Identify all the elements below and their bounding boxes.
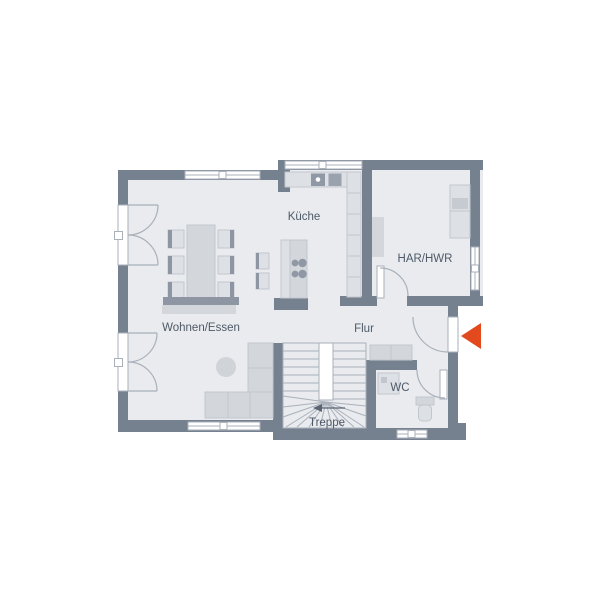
window-utility-right-handle <box>472 265 479 272</box>
window-kitchen-top-handle <box>319 162 326 169</box>
sideboard-bench <box>163 297 239 305</box>
cooktop-burner <box>292 271 299 278</box>
wall-stairs-right <box>366 360 376 440</box>
sideboard <box>162 305 236 314</box>
bar-stool-back <box>256 253 259 269</box>
french-door-lower-handle <box>115 359 123 367</box>
entrance-door-leaf <box>448 317 458 352</box>
room-label-wohnen-essen: Wohnen/Essen <box>162 322 240 334</box>
wall-right-lower-above-door <box>448 306 458 317</box>
toilet-bowl <box>419 405 432 421</box>
floor-plan-drawing: Küche HAR/HWR Wohnen/Essen Flur WC Trepp… <box>0 0 600 600</box>
kitchen-appliance <box>329 174 342 187</box>
utility-door-leaf <box>377 266 384 298</box>
kitchen-island-counter <box>281 240 290 298</box>
room-label-har-hwr: HAR/HWR <box>398 253 453 265</box>
chair-back <box>168 256 172 274</box>
french-door-upper-handle <box>115 232 123 240</box>
dining-chairs-left <box>168 230 184 300</box>
room-label-wc: WC <box>390 382 409 394</box>
coffee-table <box>216 357 236 377</box>
dining-table <box>187 225 215 303</box>
chair-back <box>230 230 234 248</box>
entrance-arrow-icon <box>461 323 481 349</box>
cooktop-burner <box>298 270 306 278</box>
room-label-flur: Flur <box>354 323 374 335</box>
wall-island-stub <box>274 298 308 310</box>
bar-stool-back <box>256 273 259 289</box>
wc-washbasin-tap <box>381 377 387 383</box>
utility-shelf <box>372 217 384 257</box>
kitchen-sink-drain <box>316 177 321 182</box>
chair-back <box>230 256 234 274</box>
washing-machine-door <box>452 198 468 209</box>
window-living-top-handle <box>219 172 226 179</box>
wall-corner-bottom-right <box>448 423 466 440</box>
dryer <box>450 211 470 238</box>
room-label-treppe: Treppe <box>309 417 345 429</box>
window-wc-bottom-handle <box>408 431 415 438</box>
kitchen-island <box>290 240 307 298</box>
dining-chairs-right <box>218 230 234 300</box>
wc-door-leaf <box>440 370 447 399</box>
sofa-vertical <box>248 343 273 418</box>
floor-plan-image: Küche HAR/HWR Wohnen/Essen Flur WC Trepp… <box>0 0 600 600</box>
chair-back <box>168 230 172 248</box>
wall-kitchen-utility-separator <box>362 170 372 296</box>
wall-utility-bottom-right <box>407 296 483 306</box>
stairs-well <box>319 343 333 400</box>
toilet-tank <box>416 397 434 405</box>
cooktop-burner <box>298 259 306 267</box>
room-label-kueche: Küche <box>288 211 321 223</box>
window-living-bottom-handle <box>220 423 227 430</box>
cooktop-burner <box>292 260 299 267</box>
